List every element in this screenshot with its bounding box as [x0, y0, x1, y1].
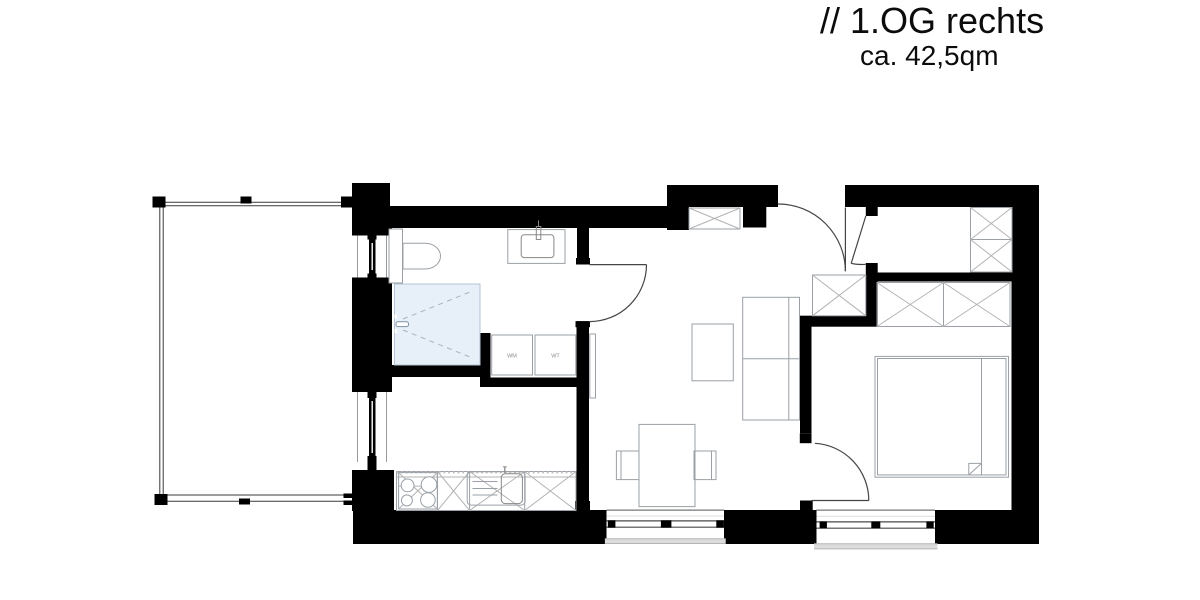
svg-text:WM: WM: [507, 354, 517, 360]
svg-text:// 1.OG rechts: // 1.OG rechts: [820, 0, 1044, 41]
svg-text:WT: WT: [551, 354, 560, 360]
svg-text:ca. 42,5qm: ca. 42,5qm: [860, 40, 999, 71]
